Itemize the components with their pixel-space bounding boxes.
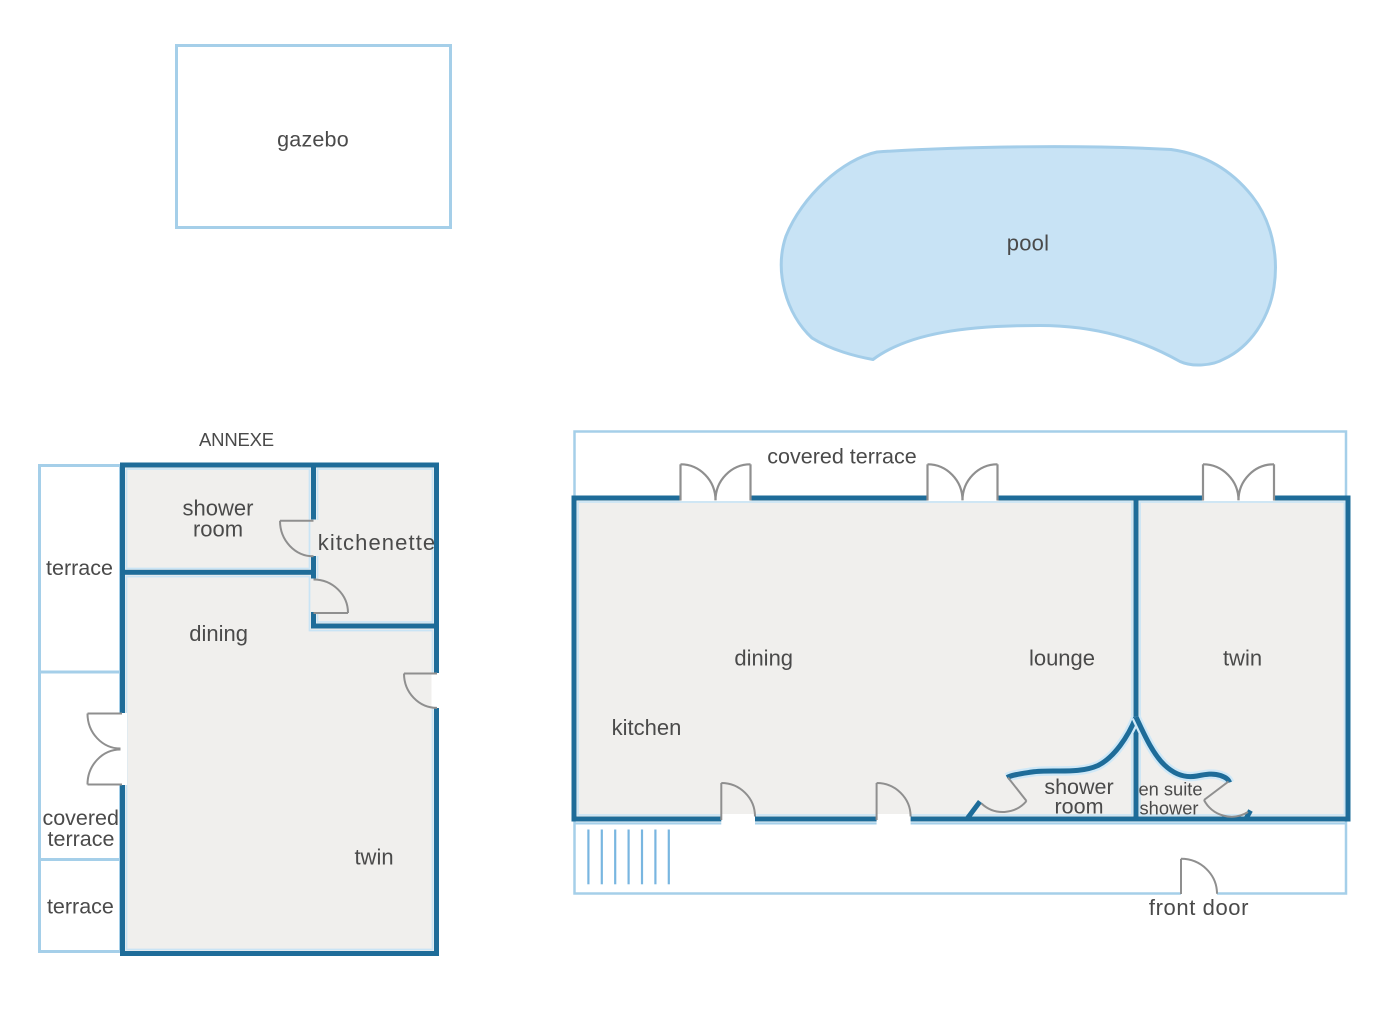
svg-text:front door: front door: [1149, 895, 1249, 920]
svg-text:terrace: terrace: [46, 556, 113, 580]
svg-text:ANNEXE: ANNEXE: [199, 429, 274, 450]
svg-text:kitchen: kitchen: [612, 715, 682, 740]
svg-text:terrace: terrace: [47, 895, 114, 919]
svg-text:twin: twin: [1223, 646, 1262, 671]
svg-text:covered terrace: covered terrace: [767, 445, 916, 469]
svg-text:lounge: lounge: [1029, 646, 1095, 671]
svg-text:dining: dining: [734, 646, 793, 671]
svg-text:dining: dining: [189, 621, 248, 646]
svg-text:gazebo: gazebo: [277, 128, 349, 152]
svg-text:en suite: en suite: [1138, 779, 1202, 800]
svg-text:pool: pool: [1007, 231, 1049, 256]
svg-text:room: room: [1055, 795, 1104, 819]
svg-text:shower: shower: [1140, 798, 1199, 819]
svg-text:kitchenette: kitchenette: [318, 530, 437, 555]
svg-text:twin: twin: [354, 845, 393, 870]
svg-text:terrace: terrace: [48, 827, 115, 851]
svg-text:room: room: [193, 517, 243, 542]
